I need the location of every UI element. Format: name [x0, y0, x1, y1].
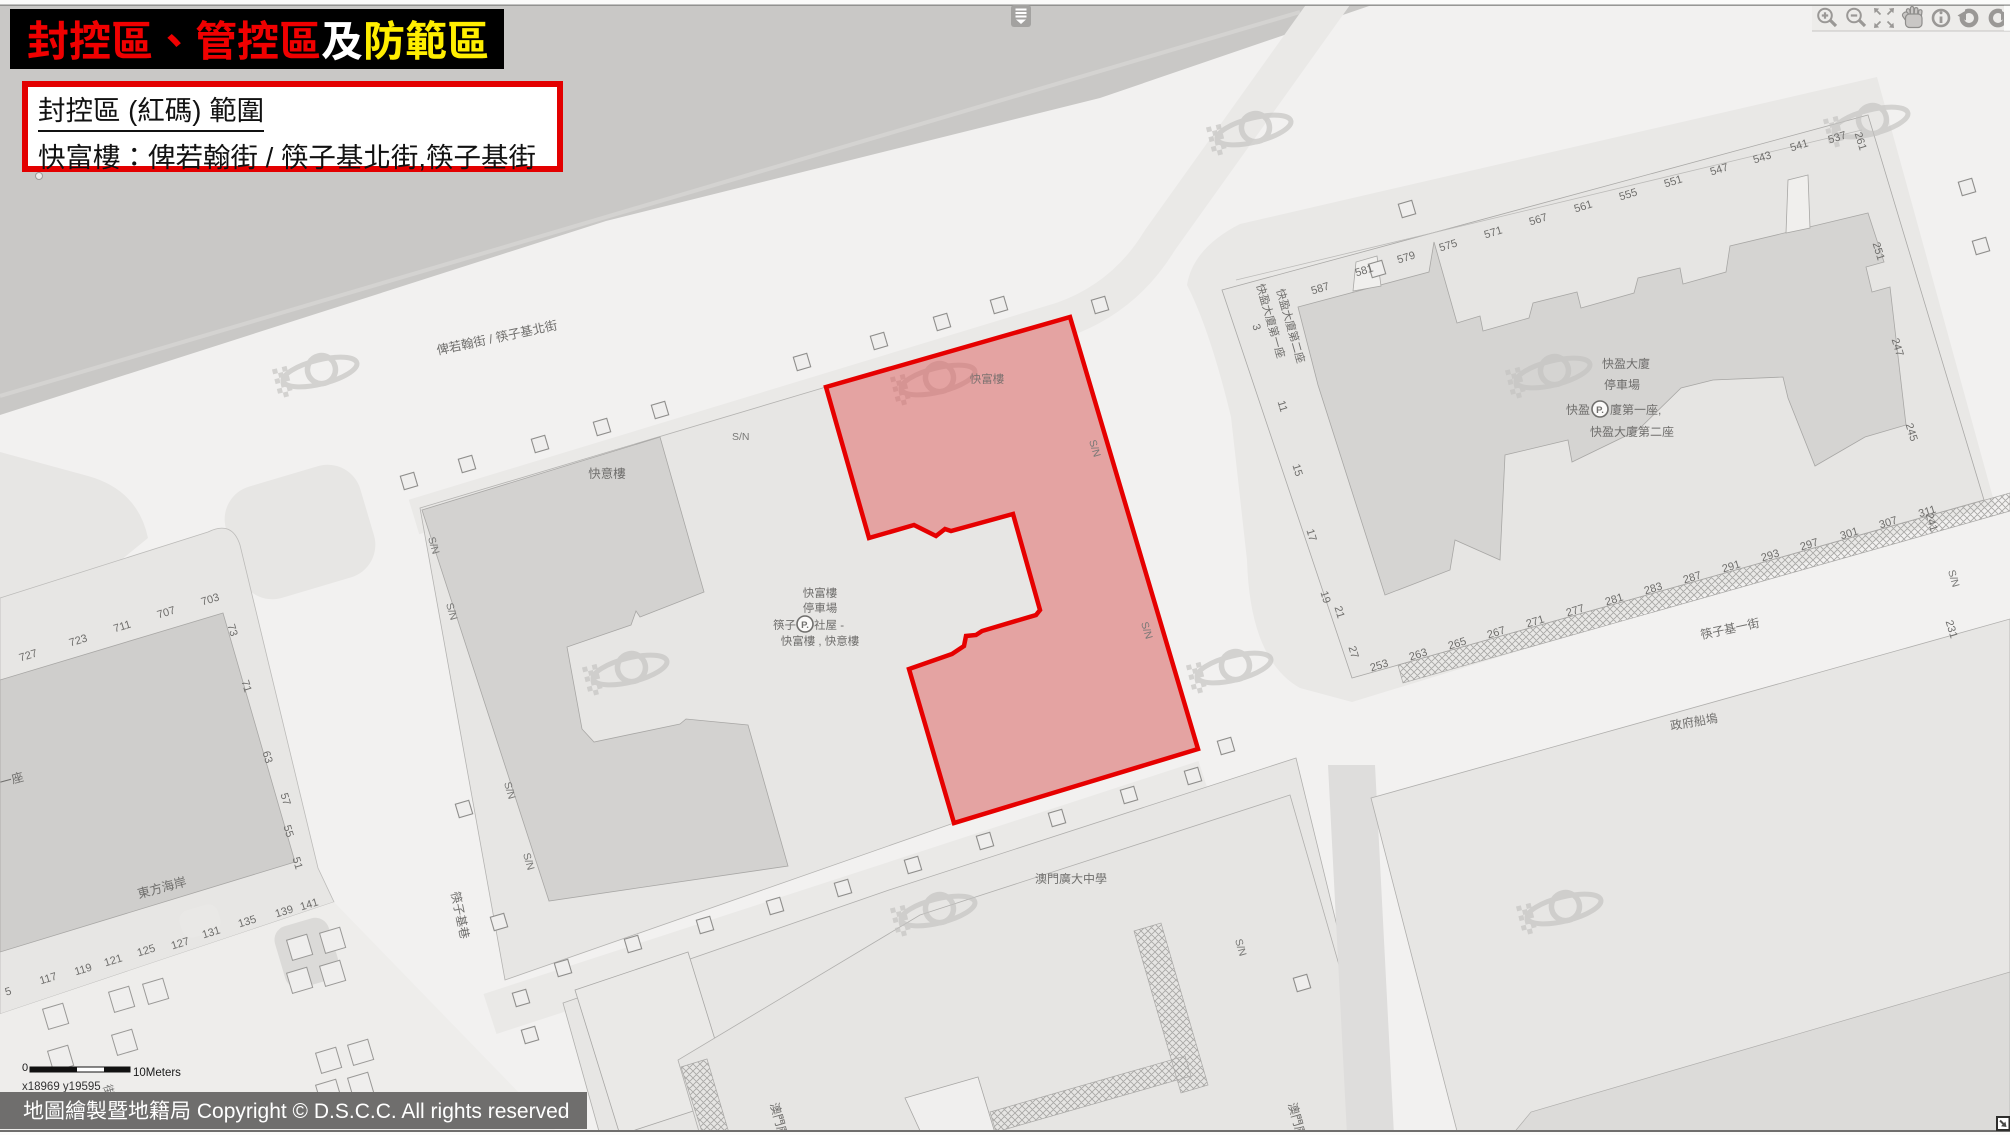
- svg-text:快意樓: 快意樓: [588, 463, 626, 482]
- svg-text:快富樓: 快富樓: [803, 585, 838, 601]
- svg-text:快盈: 快盈: [1566, 401, 1590, 418]
- svg-text:S/N: S/N: [732, 429, 750, 444]
- svg-text:社屋 -: 社屋 -: [814, 617, 844, 633]
- svg-text:P.: P.: [801, 617, 809, 631]
- svg-text:廈第一座,: 廈第一座,: [1610, 401, 1661, 418]
- svg-text:快富樓: 快富樓: [970, 371, 1005, 387]
- svg-text:快盈大廈第二座: 快盈大廈第二座: [1590, 423, 1674, 440]
- svg-text:停車場: 停車場: [803, 600, 838, 616]
- svg-text:0: 0: [22, 1062, 28, 1074]
- svg-text:P.: P.: [1596, 402, 1604, 416]
- svg-text:停車場: 停車場: [1604, 376, 1640, 393]
- svg-text:10Meters: 10Meters: [133, 1067, 181, 1079]
- svg-text:澳門廣大中學: 澳門廣大中學: [1035, 870, 1107, 887]
- svg-text:筷子: 筷子: [773, 617, 796, 633]
- svg-text:快盈大廈: 快盈大廈: [1602, 355, 1650, 372]
- svg-text:快富樓 , 快意樓: 快富樓 , 快意樓: [781, 633, 860, 649]
